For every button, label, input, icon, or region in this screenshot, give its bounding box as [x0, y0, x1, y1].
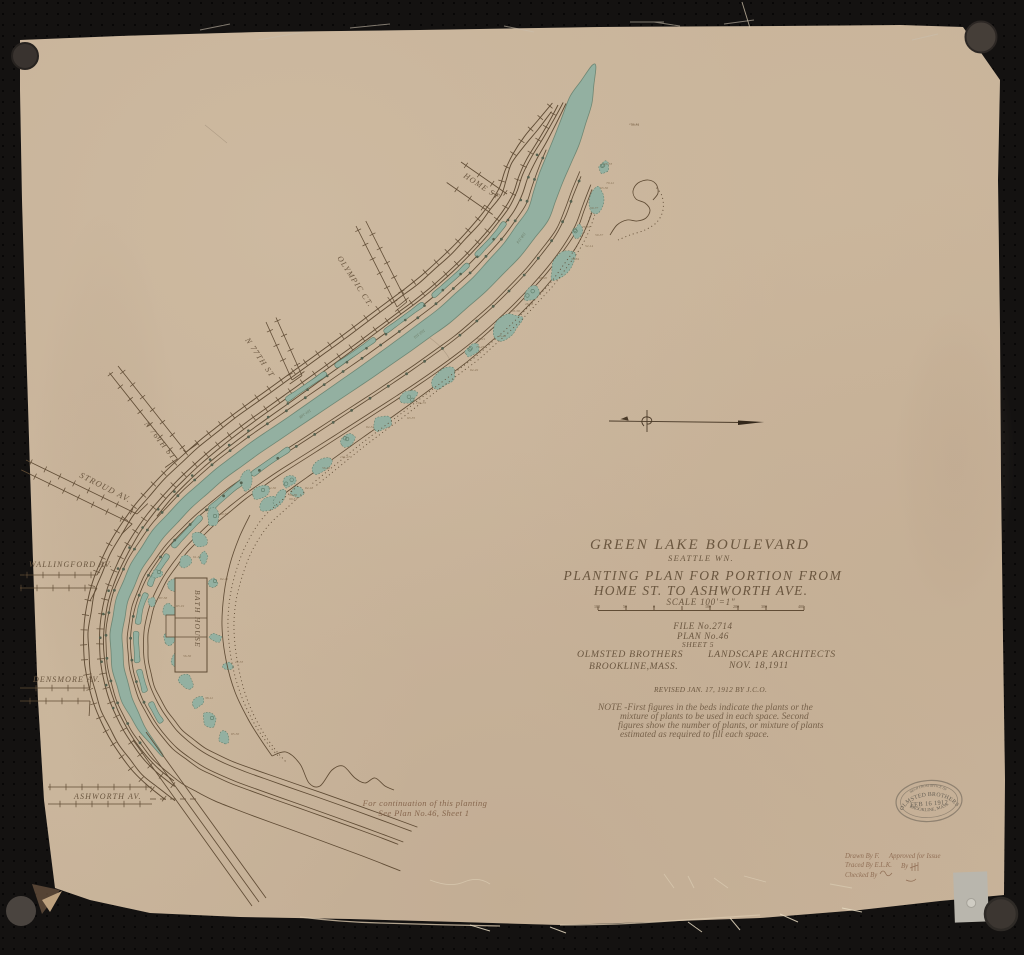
svg-text:39-86: 39-86 [289, 493, 297, 497]
svg-text:FILE No.2714: FILE No.2714 [672, 621, 732, 631]
svg-text:0: 0 [653, 604, 655, 609]
svg-text:300: 300 [761, 604, 767, 609]
svg-text:REVISED JAN. 17, 1912 BY J.C.O: REVISED JAN. 17, 1912 BY J.C.O. [653, 685, 767, 694]
svg-text:GREEN LAKE BOULEVARD: GREEN LAKE BOULEVARD [590, 537, 810, 553]
svg-text:52-14: 52-14 [585, 244, 593, 248]
svg-text:ASHWORTH AV.: ASHWORTH AV. [73, 792, 142, 801]
svg-text:105-58: 105-58 [510, 309, 520, 313]
svg-text:56-86: 56-86 [322, 466, 330, 470]
svg-text:200: 200 [733, 604, 739, 609]
svg-text:BROOKLINE,MASS.: BROOKLINE,MASS. [589, 662, 678, 672]
svg-text:84-32: 84-32 [366, 425, 374, 429]
svg-text:DENSMORE AV.: DENSMORE AV. [32, 675, 101, 684]
svg-text:Checked By: Checked By [845, 872, 878, 879]
svg-text:Approved for Issue: Approved for Issue [888, 853, 940, 860]
svg-text:See Plan No.46, Sheet 1: See Plan No.46, Sheet 1 [379, 808, 470, 818]
svg-text:Traced By E.L.K.: Traced By E.L.K. [845, 862, 892, 869]
svg-text:84-49: 84-49 [470, 368, 478, 372]
svg-text:77-23: 77-23 [476, 345, 484, 349]
svg-text:NOV. 18,1911: NOV. 18,1911 [728, 661, 789, 671]
svg-text:68-20: 68-20 [539, 276, 547, 280]
svg-text:87-58: 87-58 [159, 596, 167, 600]
svg-text:OLMSTED BROTHERS: OLMSTED BROTHERS [577, 649, 683, 660]
svg-text:70-12: 70-12 [606, 181, 614, 185]
svg-text:30-84: 30-84 [571, 257, 579, 261]
svg-text:85-50: 85-50 [231, 732, 239, 736]
svg-text:74-56: 74-56 [268, 486, 276, 490]
svg-text:83-19: 83-19 [176, 604, 184, 608]
svg-text:SEATTLE WN.: SEATTLE WN. [668, 553, 734, 563]
svg-text:estimated as required to fill: estimated as required to fill each space… [620, 729, 769, 740]
svg-text:56-56: 56-56 [183, 654, 191, 658]
svg-text:84-18: 84-18 [305, 486, 313, 490]
svg-text:50: 50 [623, 604, 627, 609]
svg-text:90-51: 90-51 [289, 497, 297, 501]
svg-text:By: By [901, 863, 909, 870]
svg-text:63-35: 63-35 [407, 416, 415, 420]
svg-text:69-58: 69-58 [220, 512, 228, 516]
svg-text:26-26: 26-26 [525, 302, 533, 306]
svg-text:59-37: 59-37 [595, 233, 603, 237]
svg-text:PLANTING PLAN FOR PORTION FROM: PLANTING PLAN FOR PORTION FROM [563, 568, 843, 583]
svg-text:53-56: 53-56 [600, 186, 608, 190]
svg-text:78-33: 78-33 [582, 225, 590, 229]
svg-text:61-56: 61-56 [193, 555, 201, 559]
svg-text:LANDSCAPE ARCHITECTS: LANDSCAPE ARCHITECTS [707, 649, 836, 660]
svg-text:SCALE 100'=1": SCALE 100'=1" [667, 597, 736, 607]
svg-text:38-12: 38-12 [205, 696, 213, 700]
svg-text:For continuation of this plant: For continuation of this planting [362, 798, 488, 808]
svg-text:22-53: 22-53 [235, 660, 243, 664]
svg-text:BATH HOUSE: BATH HOUSE [193, 590, 202, 648]
svg-text:100: 100 [705, 604, 711, 609]
svg-text:59-77: 59-77 [590, 206, 598, 210]
svg-text:SHEET 5: SHEET 5 [682, 640, 714, 649]
svg-text:Drawn By F.: Drawn By F. [844, 853, 880, 860]
svg-text:WALLINGFORD AV.: WALLINGFORD AV. [29, 560, 113, 569]
svg-text:100: 100 [594, 604, 600, 609]
svg-text:45-41: 45-41 [498, 334, 506, 338]
svg-text:53-21: 53-21 [477, 337, 485, 341]
svg-text:104-73: 104-73 [416, 401, 426, 405]
svg-text:400: 400 [798, 604, 804, 609]
svg-text:26-33: 26-33 [604, 162, 612, 166]
svg-text:132-42: 132-42 [629, 122, 639, 126]
svg-text:HOME ST. TO ASHWORTH AVE.: HOME ST. TO ASHWORTH AVE. [593, 583, 808, 598]
svg-text:84-46: 84-46 [220, 577, 228, 581]
svg-text:101-27: 101-27 [340, 455, 350, 459]
